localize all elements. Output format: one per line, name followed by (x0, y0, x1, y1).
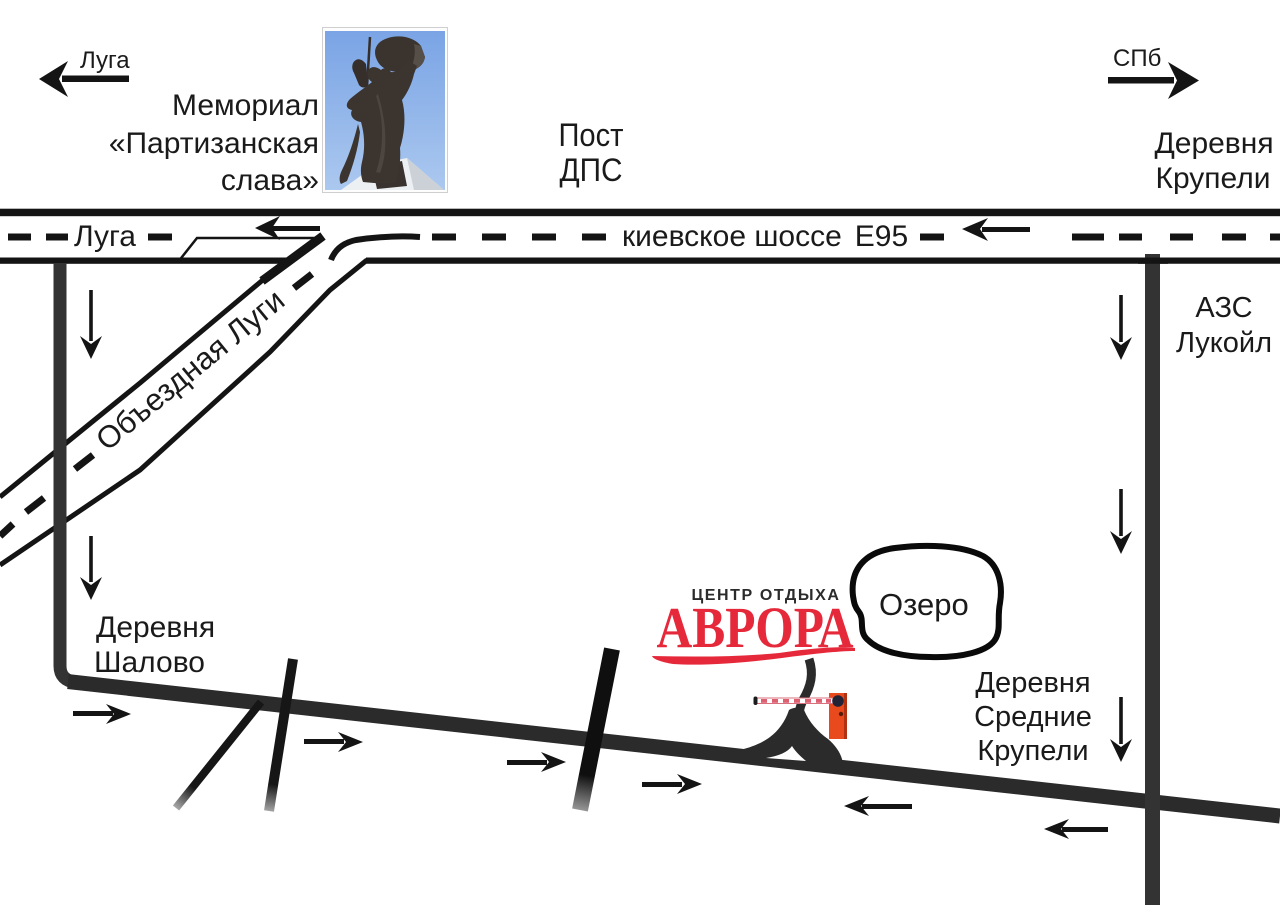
svg-text:слава»: слава» (221, 164, 319, 197)
svg-text:СПб: СПб (1113, 45, 1161, 72)
svg-text:Шалово: Шалово (94, 646, 205, 679)
svg-text:Мемориал: Мемориал (172, 89, 319, 122)
svg-text:киевское шоссеЕ95: киевское шоссеЕ95 (622, 220, 908, 253)
svg-text:Объездная Луги: Объездная Луги (89, 282, 291, 457)
svg-text:Средние: Средние (974, 701, 1092, 733)
svg-text:АЗС: АЗС (1195, 292, 1252, 324)
svg-text:Озеро: Озеро (879, 587, 969, 622)
svg-text:Деревня: Деревня (96, 611, 215, 644)
svg-text:Луга: Луга (74, 220, 136, 253)
svg-text:Деревня: Деревня (1154, 127, 1273, 160)
svg-text:Деревня: Деревня (975, 667, 1090, 699)
svg-text:Лукойл: Лукойл (1176, 327, 1272, 359)
svg-text:Пост: Пост (559, 117, 624, 153)
svg-text:ДПС: ДПС (560, 152, 623, 188)
svg-text:«Партизанская: «Партизанская (109, 127, 319, 160)
svg-text:Крупели: Крупели (977, 735, 1088, 767)
svg-text:Крупели: Крупели (1155, 162, 1270, 195)
svg-text:Луга: Луга (80, 47, 130, 74)
